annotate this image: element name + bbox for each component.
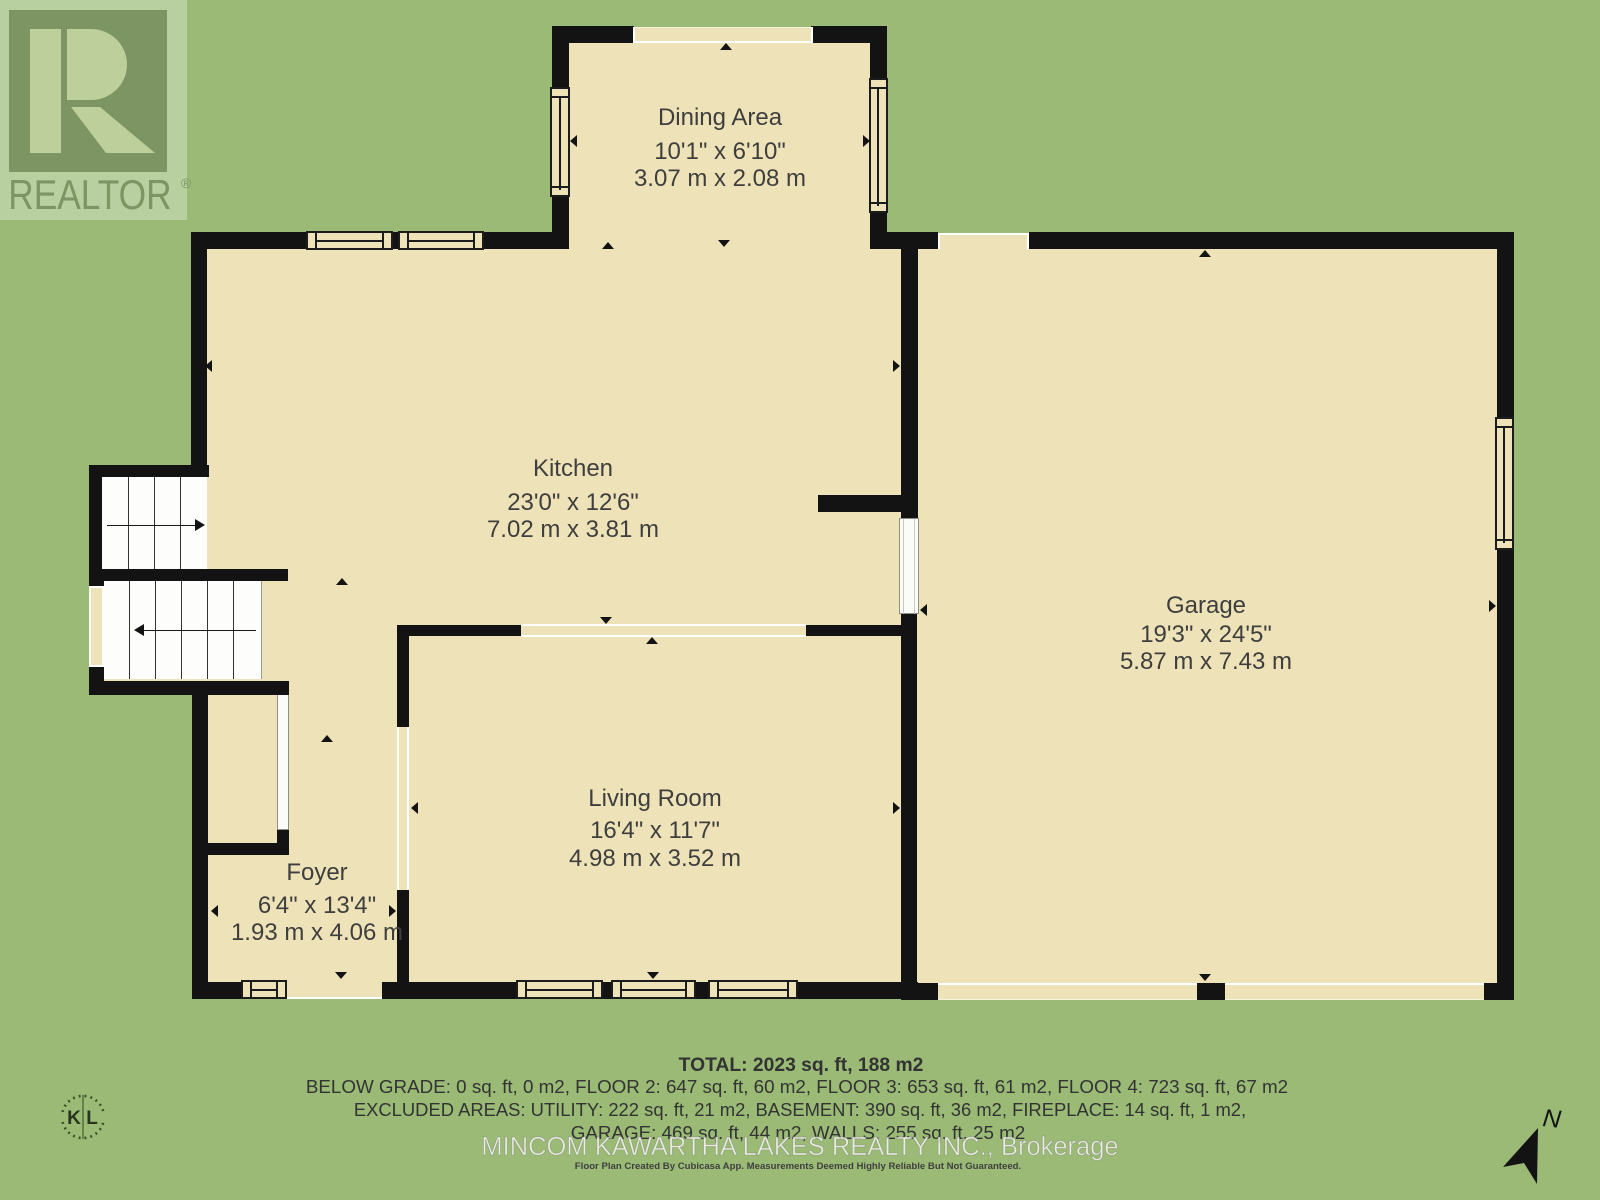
svg-text:L: L xyxy=(86,1108,98,1129)
svg-text:N: N xyxy=(1541,1104,1563,1134)
svg-text:K: K xyxy=(67,1108,81,1129)
svg-text:®: ® xyxy=(181,175,192,191)
svg-text:REALTOR: REALTOR xyxy=(8,172,171,219)
